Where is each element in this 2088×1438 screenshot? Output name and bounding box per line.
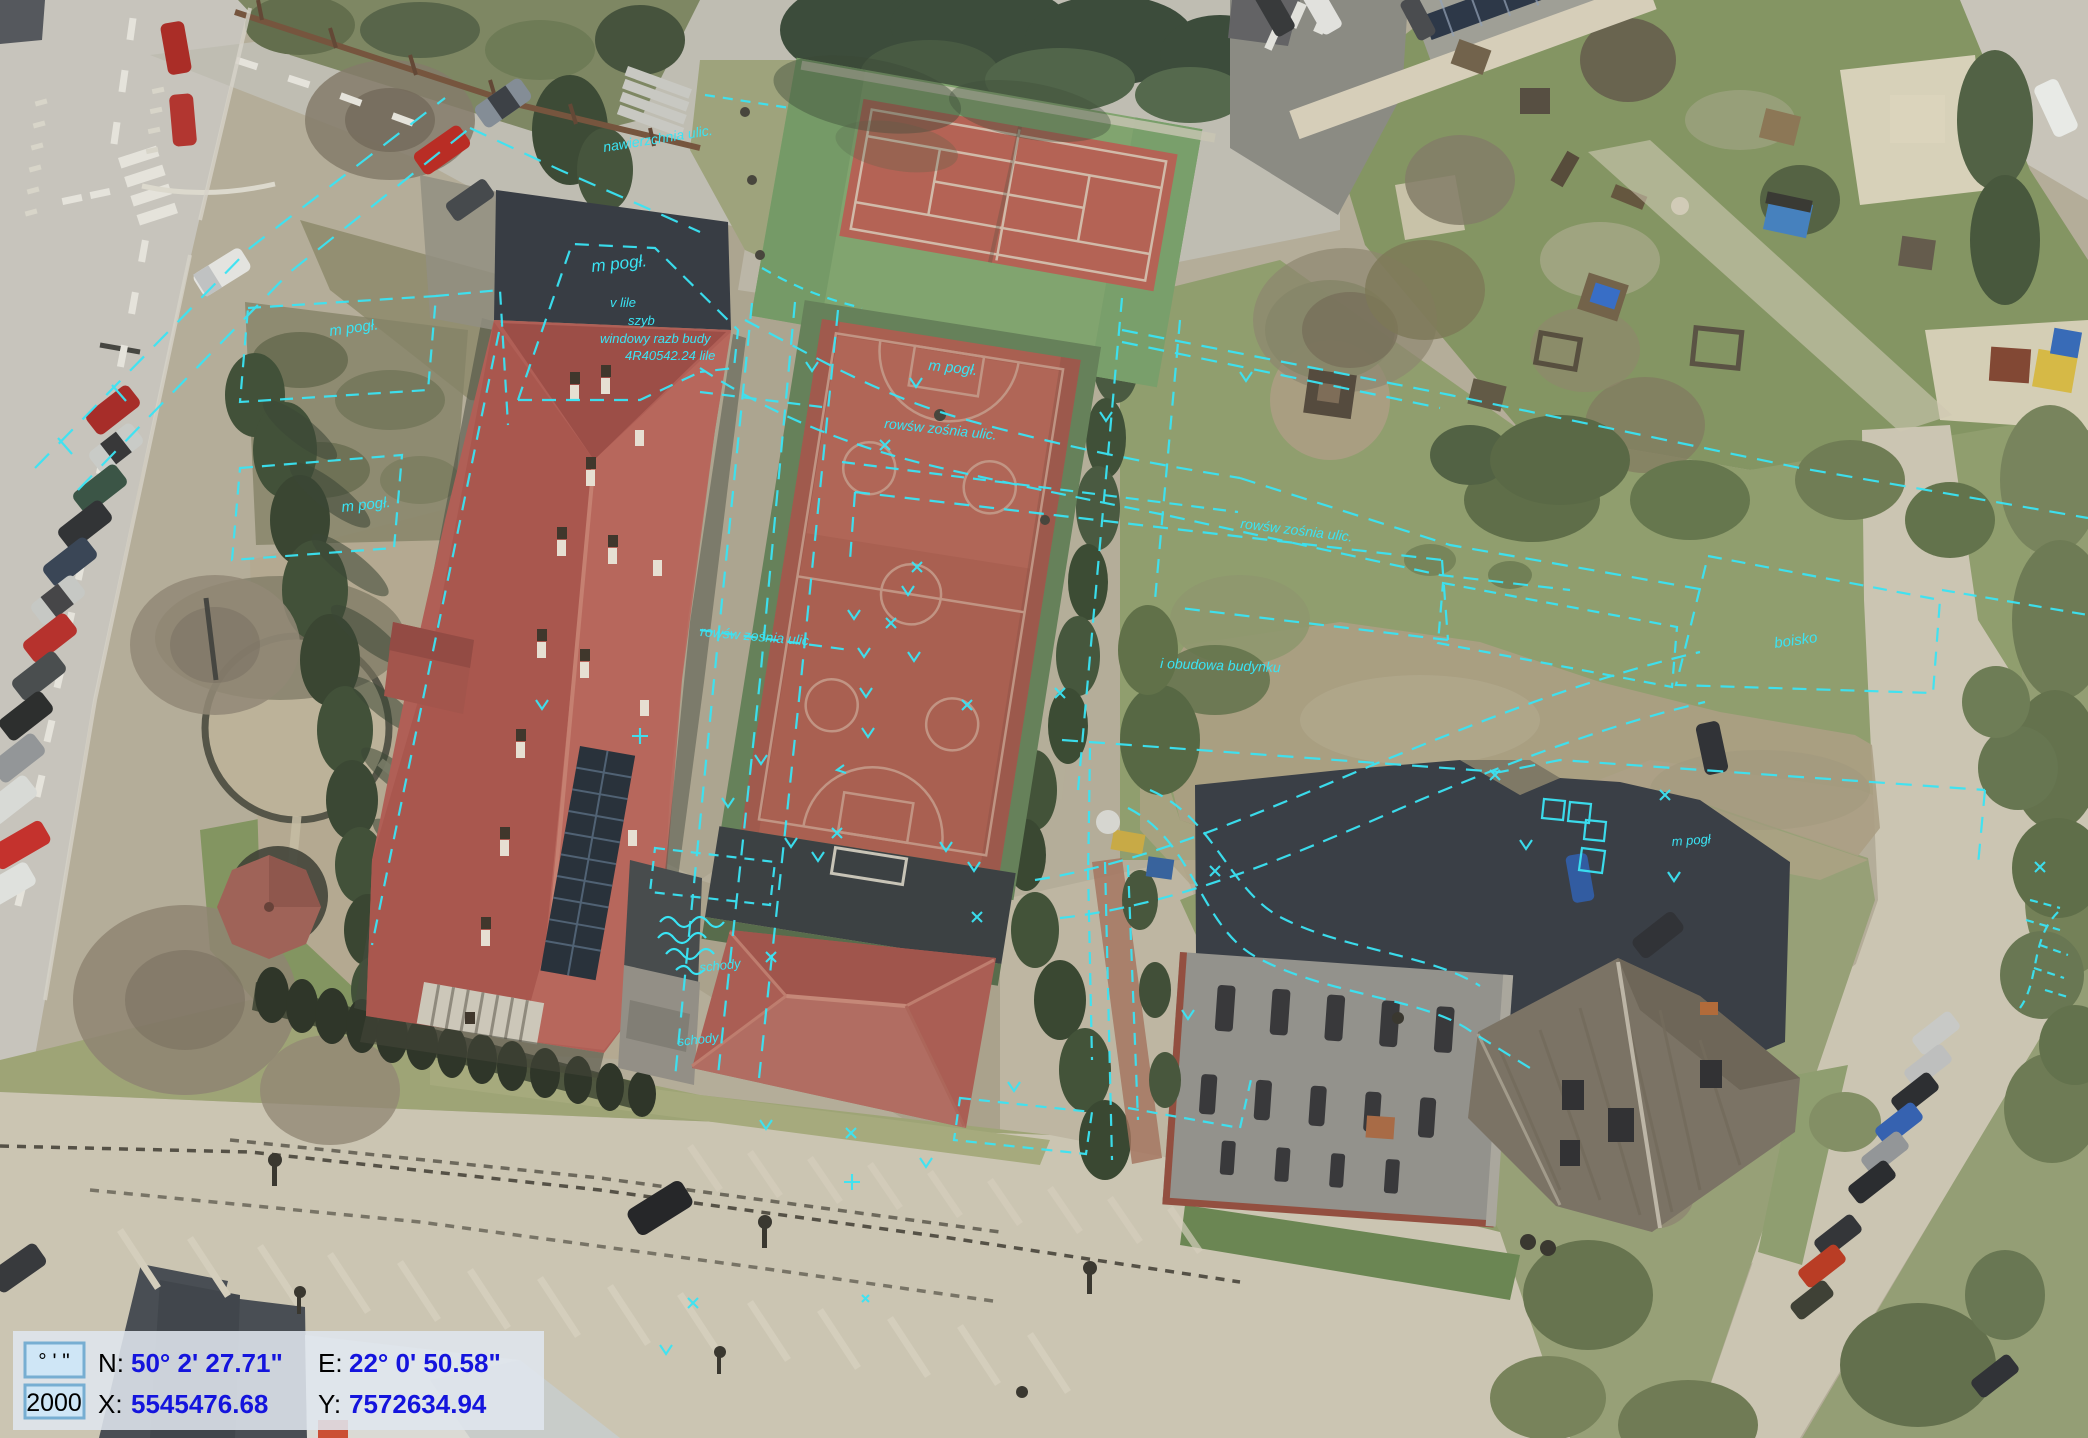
svg-text:v lile: v lile (610, 295, 636, 310)
svg-text:50° 2' 27.71": 50° 2' 27.71" (131, 1348, 283, 1378)
svg-text:E:: E: (318, 1348, 343, 1378)
svg-text:m pogł: m pogł (1671, 831, 1712, 849)
svg-text:windowy razb budy: windowy razb budy (600, 331, 712, 346)
svg-text:4R40542.24 lile: 4R40542.24 lile (625, 348, 715, 363)
svg-text:5545476.68: 5545476.68 (131, 1389, 268, 1419)
svg-text:7572634.94: 7572634.94 (349, 1389, 487, 1419)
svg-text:° ' ": ° ' " (38, 1350, 70, 1373)
svg-text:N:: N: (98, 1348, 124, 1378)
svg-text:Y:: Y: (318, 1389, 341, 1419)
svg-text:szyb: szyb (628, 313, 655, 328)
svg-text:2000: 2000 (26, 1389, 82, 1417)
svg-text:X:: X: (98, 1389, 123, 1419)
svg-text:22° 0' 50.58": 22° 0' 50.58" (349, 1348, 501, 1378)
